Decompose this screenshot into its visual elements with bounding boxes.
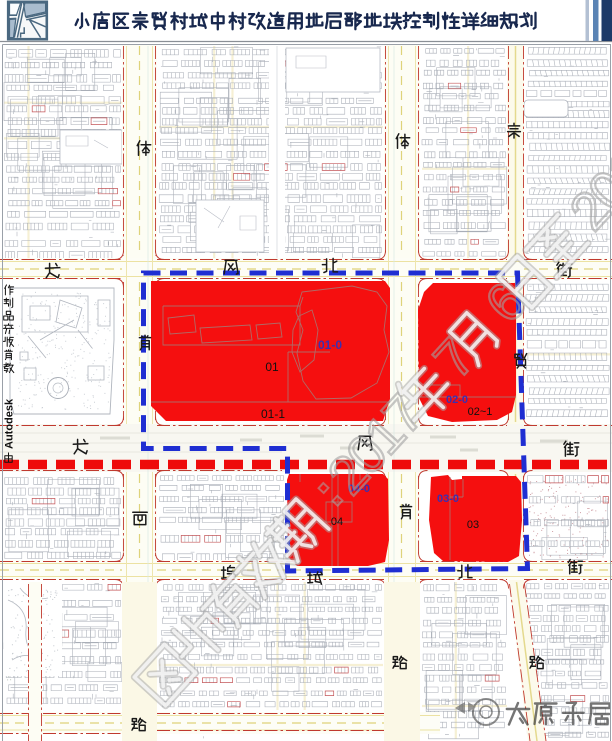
svg-text:04: 04 <box>331 516 343 528</box>
svg-text:03: 03 <box>467 519 479 531</box>
svg-text:01: 01 <box>265 360 279 374</box>
svg-text:01-1: 01-1 <box>261 407 285 421</box>
svg-text:01-0: 01-0 <box>318 338 342 352</box>
svg-text:Autodesk: Autodesk <box>4 398 16 449</box>
svg-text:03-0: 03-0 <box>437 493 459 505</box>
svg-text:02-0: 02-0 <box>446 394 468 406</box>
svg-text:02~1: 02~1 <box>468 406 493 418</box>
